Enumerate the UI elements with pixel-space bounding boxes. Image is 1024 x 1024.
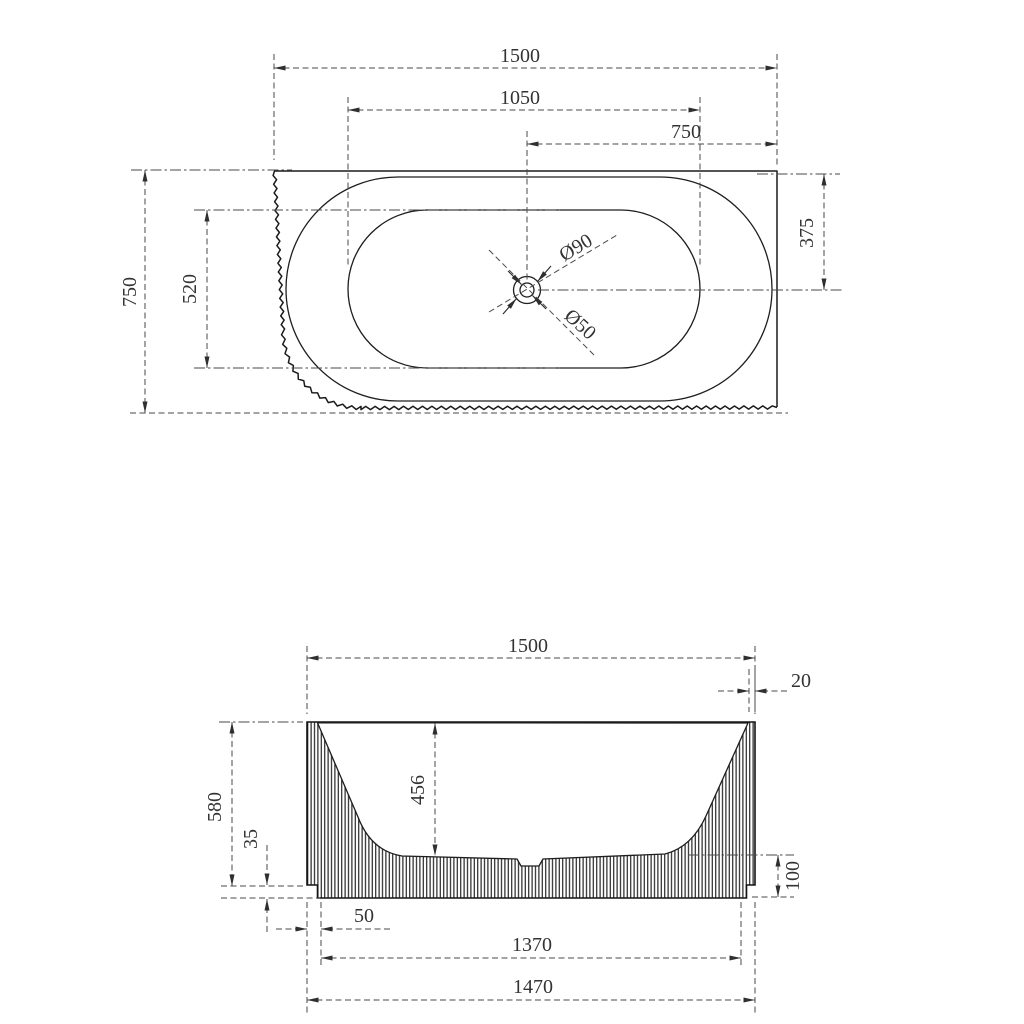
drain-arrow-nw xyxy=(508,271,522,285)
dim-plan-basin-width: 520 xyxy=(179,210,560,368)
tub-section-basin xyxy=(318,723,749,866)
drawing-svg: Ø90 Ø50 1500 1050 750 750 xyxy=(0,0,1024,1024)
drain-waste-circle xyxy=(520,283,534,297)
dim-label-drain-flange: Ø90 xyxy=(555,230,596,267)
dim-label-front-base-inset: 50 xyxy=(354,905,374,927)
extension-lines xyxy=(348,97,700,268)
drain-arrow-ne xyxy=(538,266,552,282)
front-elevation: 1500 20 580 35 456 xyxy=(204,635,811,1013)
extension-lines xyxy=(194,210,560,368)
extension-lines xyxy=(749,669,755,712)
dim-front-overall-height: 580 xyxy=(204,722,306,886)
plan-view: Ø90 Ø50 1500 1050 750 750 xyxy=(119,45,843,413)
dim-front-rim-thickness: 20 xyxy=(718,669,811,712)
dim-label-front-base-width: 1370 xyxy=(512,934,552,956)
dim-front-plinth-step: 35 xyxy=(221,829,320,932)
drain-arrow-sw xyxy=(503,299,517,315)
dim-label-plan-drain-offset: 375 xyxy=(796,218,818,248)
dim-label-plan-drain-to-right: 750 xyxy=(671,121,701,143)
dim-label-front-basin-depth: 456 xyxy=(407,775,429,805)
tub-inner-basin xyxy=(348,210,700,368)
dim-label-plan-basin-width: 520 xyxy=(179,274,201,304)
dim-label-plan-basin-length: 1050 xyxy=(500,87,540,109)
dim-label-drain-waste: Ø50 xyxy=(560,305,600,344)
dim-label-front-overall-width: 1500 xyxy=(508,635,548,657)
dim-label-plan-overall-width: 1500 xyxy=(500,45,540,67)
drain-leader-waste xyxy=(489,250,596,357)
dim-label-front-base-height: 100 xyxy=(782,861,804,891)
dim-label-front-overall-height: 580 xyxy=(204,792,226,822)
dim-front-overall-width: 1500 xyxy=(307,635,755,714)
dim-label-front-plinth-step: 35 xyxy=(240,829,262,849)
dim-label-front-rim-thickness: 20 xyxy=(791,670,811,692)
drain-leader-flange xyxy=(489,235,617,312)
drain: Ø90 Ø50 xyxy=(489,230,617,357)
dim-label-front-lower-width: 1470 xyxy=(513,976,553,998)
drain-arrow-se xyxy=(533,296,547,310)
dim-label-plan-overall-depth: 750 xyxy=(119,277,141,307)
dim-plan-overall-depth: 750 xyxy=(119,170,788,413)
extension-lines xyxy=(307,902,321,1013)
dim-front-base-width: 1370 xyxy=(321,902,741,966)
plan-outline-straight-edges xyxy=(274,171,777,407)
technical-drawing-sheet: Ø90 Ø50 1500 1050 750 750 xyxy=(0,0,1024,1024)
